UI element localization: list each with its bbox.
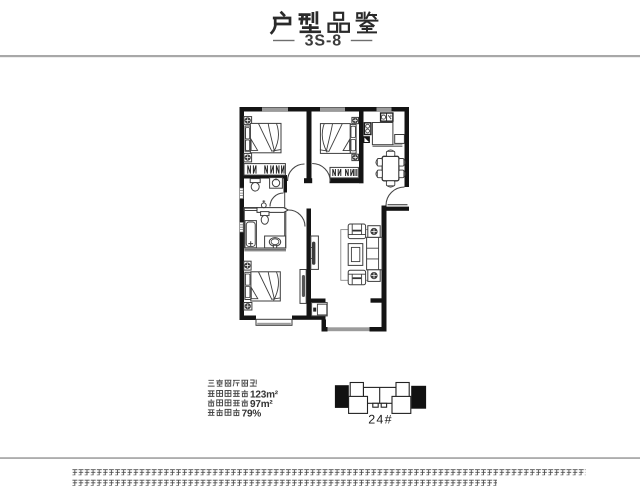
svg-text:79%: 79% — [242, 408, 262, 419]
svg-text:24#: 24# — [368, 412, 392, 426]
svg-text:3S-8: 3S-8 — [305, 33, 342, 50]
